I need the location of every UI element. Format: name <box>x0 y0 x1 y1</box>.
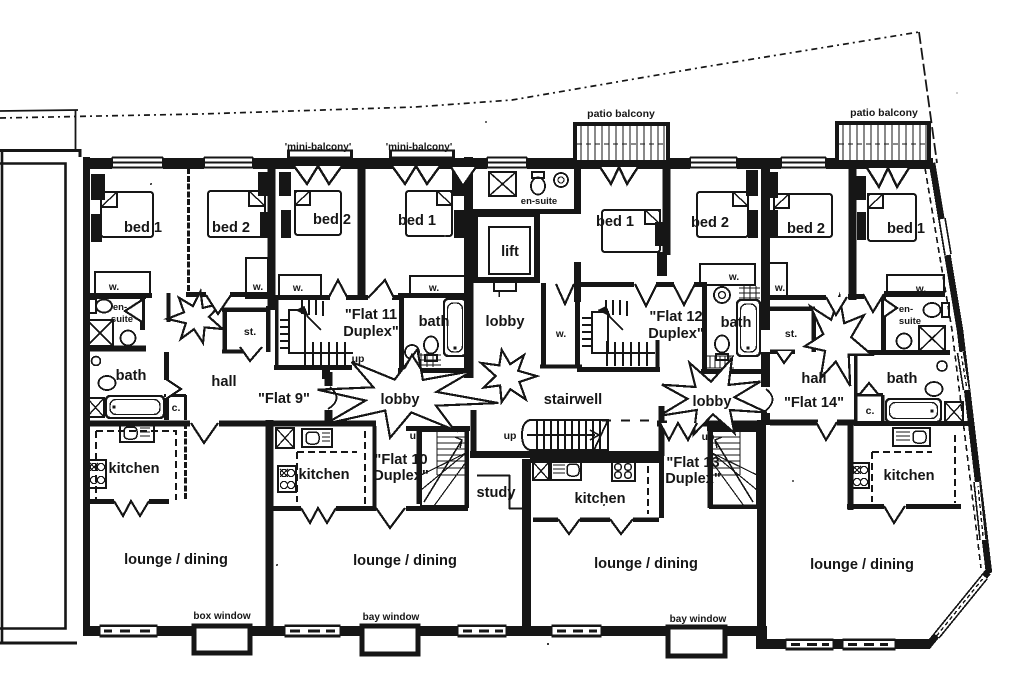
svg-text:lobby: lobby <box>381 392 421 408</box>
svg-text:kitchen: kitchen <box>298 467 349 483</box>
svg-text:bath: bath <box>721 315 752 331</box>
svg-text:patio balcony: patio balcony <box>587 108 655 120</box>
svg-text:'mini-balcony': 'mini-balcony' <box>386 142 452 153</box>
svg-text:hall: hall <box>801 371 826 387</box>
svg-text:stairwell: stairwell <box>544 392 602 408</box>
svg-text:Duplex": Duplex" <box>343 324 399 340</box>
svg-text:lounge / dining: lounge / dining <box>124 552 228 568</box>
svg-text:"Flat 14": "Flat 14" <box>784 395 844 411</box>
svg-text:w.: w. <box>108 282 119 293</box>
svg-text:"Flat 10: "Flat 10 <box>374 452 427 468</box>
svg-text:Duplex": Duplex" <box>373 468 429 484</box>
svg-text:bay window: bay window <box>670 614 727 625</box>
svg-text:w.: w. <box>728 272 739 283</box>
svg-text:bed 1: bed 1 <box>887 221 925 237</box>
svg-text:hall: hall <box>211 374 236 390</box>
svg-text:bath: bath <box>116 368 147 384</box>
svg-text:en-: en- <box>113 302 127 313</box>
svg-text:study: study <box>477 485 517 501</box>
svg-text:w.: w. <box>915 284 926 295</box>
svg-text:bed 1: bed 1 <box>124 220 162 236</box>
svg-text:up: up <box>702 431 715 443</box>
svg-text:lounge / dining: lounge / dining <box>810 557 914 573</box>
svg-text:Duplex": Duplex" <box>665 471 721 487</box>
svg-text:c.: c. <box>866 405 875 417</box>
svg-text:up: up <box>352 353 365 365</box>
svg-text:en-suite: en-suite <box>521 196 557 207</box>
svg-text:"Flat 13: "Flat 13 <box>666 455 719 471</box>
svg-text:suite: suite <box>111 314 133 325</box>
svg-text:up: up <box>410 430 423 442</box>
svg-text:'mini-balcony': 'mini-balcony' <box>285 142 351 153</box>
svg-text:w.: w. <box>252 282 263 293</box>
svg-text:bed 2: bed 2 <box>212 220 250 236</box>
svg-text:lift: lift <box>501 244 519 260</box>
svg-text:up: up <box>504 430 517 442</box>
svg-text:suite: suite <box>899 316 921 327</box>
svg-text:lobby: lobby <box>693 394 733 410</box>
svg-text:"Flat 11: "Flat 11 <box>345 307 397 323</box>
svg-text:st.: st. <box>785 328 797 340</box>
svg-text:Duplex": Duplex" <box>648 326 704 342</box>
svg-text:bath: bath <box>419 314 450 330</box>
svg-text:"Flat 12: "Flat 12 <box>649 309 702 325</box>
svg-text:bed 1: bed 1 <box>398 213 436 229</box>
svg-text:"Flat 9": "Flat 9" <box>258 391 310 407</box>
svg-text:bed 2: bed 2 <box>691 215 729 231</box>
svg-text:st.: st. <box>244 326 256 338</box>
svg-text:box window: box window <box>193 611 250 622</box>
svg-text:lounge / dining: lounge / dining <box>594 556 698 572</box>
svg-text:bed 2: bed 2 <box>313 212 351 228</box>
svg-text:kitchen: kitchen <box>883 468 934 484</box>
svg-text:w.: w. <box>292 283 303 294</box>
svg-text:kitchen: kitchen <box>108 461 159 477</box>
svg-text:bath: bath <box>887 371 918 387</box>
svg-text:bed 2: bed 2 <box>787 221 825 237</box>
svg-text:kitchen: kitchen <box>574 491 625 507</box>
svg-text:c.: c. <box>172 402 181 414</box>
svg-text:w.: w. <box>555 329 566 340</box>
svg-text:bed 1: bed 1 <box>596 214 634 230</box>
svg-text:patio balcony: patio balcony <box>850 107 918 119</box>
svg-text:lobby: lobby <box>486 314 526 330</box>
svg-text:lounge / dining: lounge / dining <box>353 553 457 569</box>
svg-text:en-: en- <box>899 304 913 315</box>
svg-text:w.: w. <box>774 283 785 294</box>
svg-text:bay window: bay window <box>363 612 420 623</box>
svg-text:w.: w. <box>428 283 439 294</box>
